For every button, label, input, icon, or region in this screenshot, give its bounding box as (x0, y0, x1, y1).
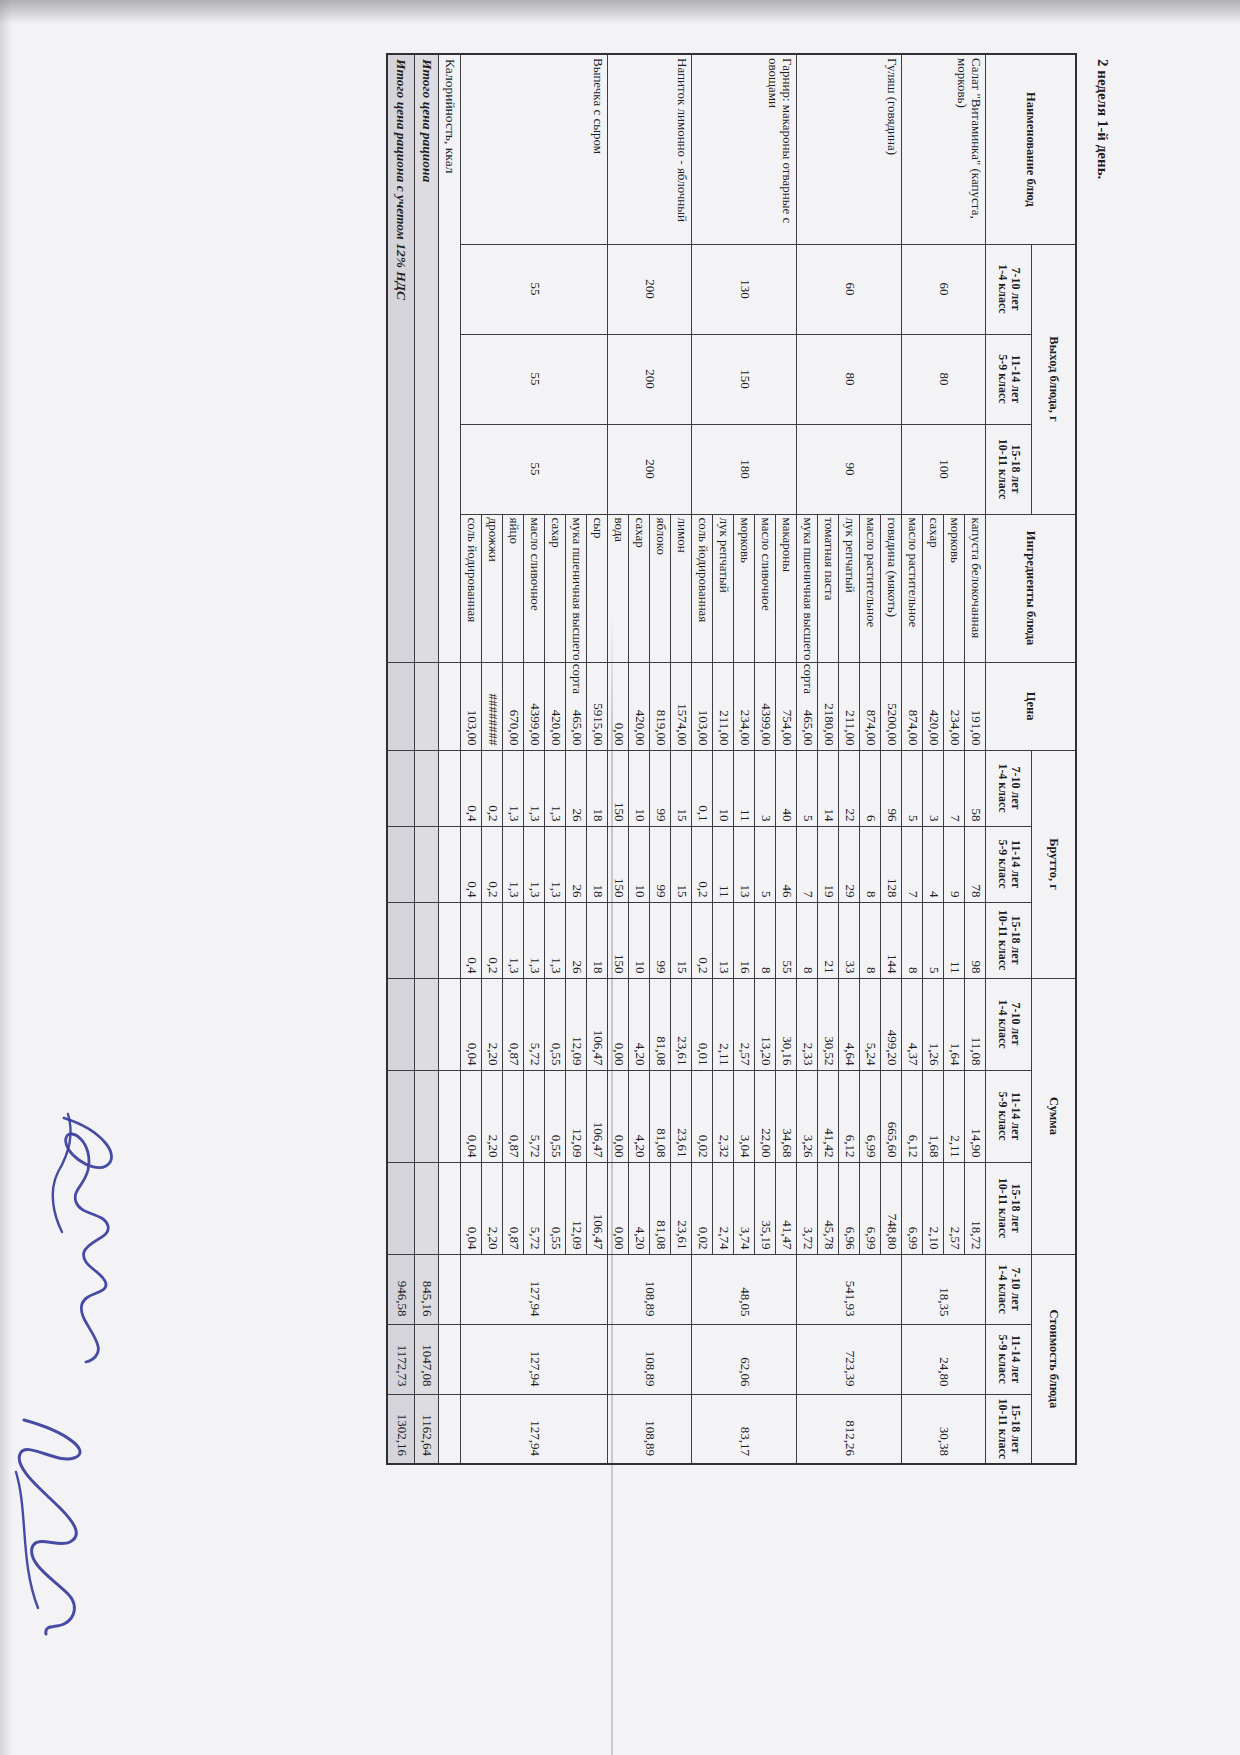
cell-empty (439, 902, 461, 978)
cell-price: 874,00 (902, 662, 923, 750)
col-header-age-class: 7-10 лет 1-4 класс (986, 244, 1032, 334)
handwritten-signature (8, 1412, 98, 1642)
cell-ingredient-name: морковь (944, 514, 965, 662)
cell-price: 670,00 (503, 662, 524, 750)
cell-empty (415, 1070, 439, 1162)
cell-empty (415, 750, 439, 826)
cell-gross-weight: 7 (944, 750, 965, 826)
cell-sum: 0,55 (545, 978, 566, 1070)
cell-output-weight: 80 (797, 334, 902, 424)
cell-gross-weight: 26 (566, 750, 587, 826)
cell-output-weight: 200 (608, 334, 692, 424)
cell-empty (387, 1162, 415, 1254)
cell-sum: 2,11 (713, 978, 734, 1070)
cell-sum: 0,04 (461, 978, 482, 1070)
cell-sum: 5,72 (524, 1162, 545, 1254)
cell-sum: 23,61 (671, 1162, 692, 1254)
cell-sum: 5,72 (524, 1070, 545, 1162)
cell-ingredient-name: томатная паста (818, 514, 839, 662)
cell-dish-cost: 541,93 (797, 1254, 902, 1324)
cell-gross-weight: 29 (839, 826, 860, 902)
cell-gross-weight: 1,3 (524, 826, 545, 902)
cell-gross-weight: 10 (713, 750, 734, 826)
cell-sum: 499,20 (881, 978, 902, 1070)
cell-sum: 2,32 (713, 1070, 734, 1162)
cell-gross-weight: 22 (839, 750, 860, 826)
cell-gross-weight: 11 (734, 750, 755, 826)
cell-output-weight: 180 (692, 424, 797, 514)
cell-output-weight: 100 (902, 424, 986, 514)
cell-sum: 2,74 (713, 1162, 734, 1254)
cell-output-weight: 60 (902, 244, 986, 334)
cell-total-cost: 845,16 (415, 1254, 439, 1324)
cell-sum: 23,61 (671, 978, 692, 1070)
cell-gross-weight: 7 (902, 826, 923, 902)
cell-price: 4399,00 (755, 662, 776, 750)
cell-gross-weight: 18 (587, 750, 608, 826)
cell-gross-weight: 78 (965, 826, 986, 902)
cell-total-cost: 1172,73 (387, 1324, 415, 1394)
cell-output-weight: 55 (461, 244, 608, 334)
cell-dish-cost: 108,89 (608, 1394, 692, 1464)
cell-output-weight: 60 (797, 244, 902, 334)
cell-sum: 35,19 (755, 1162, 776, 1254)
cell-empty (439, 750, 461, 826)
total-row: Итого цена рациона845,161047,081162,64 (415, 54, 439, 1464)
cell-price: 103,00 (692, 662, 713, 750)
cell-gross-weight: 1,3 (545, 902, 566, 978)
cell-sum: 23,61 (671, 1070, 692, 1162)
scan-edge-shadow (0, 0, 1240, 24)
col-header-age-class: 11-14 лет 5-9 класс (986, 1324, 1032, 1394)
cell-sum: 0,00 (608, 1070, 629, 1162)
col-header-age-class: 11-14 лет 5-9 класс (986, 334, 1032, 424)
cell-sum: 6,12 (839, 1070, 860, 1162)
cell-gross-weight: 8 (755, 902, 776, 978)
cell-ingredient-name: соль йодированная (461, 514, 482, 662)
menu-table-body: Салат "Витаминка" (капуста, морковь)6080… (387, 54, 986, 1464)
cell-sum: 41,47 (776, 1162, 797, 1254)
col-header-age-class: 15-18 лет 10-11 класс (986, 1162, 1032, 1254)
cell-gross-weight: 3 (755, 750, 776, 826)
cell-sum: 2,57 (734, 978, 755, 1070)
cell-ingredient-name: мука пшеничная высшего сорта (566, 514, 587, 662)
cell-total-cost (439, 1324, 461, 1394)
cell-gross-weight: 3 (923, 750, 944, 826)
cell-dish-cost: 127,94 (461, 1394, 608, 1464)
col-header-age-class: 15-18 лет 10-11 класс (986, 1394, 1032, 1464)
cell-ingredient-name: макароны (776, 514, 797, 662)
cell-ingredient-name: вода (608, 514, 629, 662)
ingredient-row: Салат "Витаминка" (капуста, морковь)6080… (965, 54, 986, 1464)
cell-ingredient-name: лимон (671, 514, 692, 662)
col-header-age-class: 15-18 лет 10-11 класс (986, 902, 1032, 978)
cell-price: 191,00 (965, 662, 986, 750)
cell-sum: 106,47 (587, 978, 608, 1070)
cell-price: 4399,00 (524, 662, 545, 750)
col-header-age-class: 7-10 лет 1-4 класс (986, 1254, 1032, 1324)
cell-sum: 0,01 (692, 978, 713, 1070)
cell-gross-weight: 16 (734, 902, 755, 978)
cell-output-weight: 150 (692, 334, 797, 424)
cell-price: 420,00 (923, 662, 944, 750)
cell-dish-cost: 723,39 (797, 1324, 902, 1394)
cell-empty (439, 1162, 461, 1254)
cell-dish-cost: 812,26 (797, 1394, 902, 1464)
cell-ingredient-name: дрожжи (482, 514, 503, 662)
cell-gross-weight: 10 (629, 902, 650, 978)
cell-gross-weight: 33 (839, 902, 860, 978)
handwritten-signature (28, 1112, 128, 1367)
cell-gross-weight: 8 (902, 902, 923, 978)
cell-gross-weight: 21 (818, 902, 839, 978)
cell-sum: 30,52 (818, 978, 839, 1070)
cell-gross-weight: 1,3 (545, 750, 566, 826)
cell-ingredient-name: масло сливочное (524, 514, 545, 662)
cell-sum: 4,20 (629, 978, 650, 1070)
cell-gross-weight: 13 (713, 902, 734, 978)
cell-output-weight: 90 (797, 424, 902, 514)
cell-gross-weight: 150 (608, 826, 629, 902)
cell-sum: 3,74 (734, 1162, 755, 1254)
cell-sum: 5,72 (524, 978, 545, 1070)
cell-gross-weight: 150 (608, 750, 629, 826)
cell-output-weight: 55 (461, 334, 608, 424)
cell-sum: 45,78 (818, 1162, 839, 1254)
cell-sum: 748,80 (881, 1162, 902, 1254)
cell-price: 103,00 (461, 662, 482, 750)
cell-gross-weight: 55 (776, 902, 797, 978)
cell-sum: 11,08 (965, 978, 986, 1070)
cell-sum: 4,20 (629, 1162, 650, 1254)
cell-output-weight: 80 (902, 334, 986, 424)
col-header-dish: Наименование блюд (986, 54, 1076, 244)
cell-sum: 18,72 (965, 1162, 986, 1254)
cell-sum: 0,04 (461, 1162, 482, 1254)
cell-gross-weight: 0,2 (482, 826, 503, 902)
cell-price: 5200,00 (881, 662, 902, 750)
cell-price: 234,00 (734, 662, 755, 750)
cell-gross-weight: 19 (818, 826, 839, 902)
cell-gross-weight: 0,1 (692, 750, 713, 826)
cell-empty (387, 826, 415, 902)
cell-dish-name: Напиток лимонно - яблочный (608, 54, 692, 244)
cell-sum: 0,55 (545, 1070, 566, 1162)
cell-gross-weight: 15 (671, 826, 692, 902)
cell-output-weight: 130 (692, 244, 797, 334)
cell-empty (387, 902, 415, 978)
cell-empty (415, 902, 439, 978)
cell-sum: 0,00 (608, 1162, 629, 1254)
cell-gross-weight: 99 (650, 902, 671, 978)
cell-gross-weight: 11 (713, 826, 734, 902)
col-header-output-group: Выход блюда, г (1032, 244, 1076, 514)
cell-empty (387, 1070, 415, 1162)
cell-sum: 3,26 (797, 1070, 818, 1162)
cell-sum: 0,02 (692, 1162, 713, 1254)
col-header-price: Цена (986, 662, 1076, 750)
cell-total-cost: 1302,16 (387, 1394, 415, 1464)
cell-ingredient-name: соль йодированная (692, 514, 713, 662)
cell-sum: 2,11 (944, 1070, 965, 1162)
cell-dish-name: Салат "Витаминка" (капуста, морковь) (902, 54, 986, 244)
cell-sum: 6,99 (860, 1162, 881, 1254)
cell-sum: 4,37 (902, 978, 923, 1070)
cell-gross-weight: 1,3 (545, 826, 566, 902)
cell-gross-weight: 9 (944, 826, 965, 902)
cell-dish-name: Гарнир: макароны отварные с овощами (692, 54, 797, 244)
cell-gross-weight: 8 (860, 826, 881, 902)
cell-dish-cost: 18,35 (902, 1254, 986, 1324)
cell-sum: 12,09 (566, 1162, 587, 1254)
cell-ingredient-name: яйцо (503, 514, 524, 662)
menu-table-head: Наименование блюд Выход блюда, г Ингреди… (986, 54, 1076, 1464)
cell-gross-weight: 0,2 (482, 902, 503, 978)
ingredient-row: Напиток лимонно - яблочный200200200лимон… (671, 54, 692, 1464)
cell-sum: 3,04 (734, 1070, 755, 1162)
col-header-age-class: 7-10 лет 1-4 класс (986, 750, 1032, 826)
cell-gross-weight: 26 (566, 826, 587, 902)
cell-gross-weight: 5 (755, 826, 776, 902)
cell-gross-weight: 6 (860, 750, 881, 826)
cell-sum: 14,90 (965, 1070, 986, 1162)
cell-sum: 2,33 (797, 978, 818, 1070)
cell-sum: 5,24 (860, 978, 881, 1070)
page-title: 2 неделя 1-й день. (1085, 59, 1111, 1463)
cell-total-cost: 1047,08 (415, 1324, 439, 1394)
footer-row-label: Калорийность, ккал (439, 54, 461, 662)
cell-sum: 2,10 (923, 1162, 944, 1254)
cell-dish-name: Выпечка с сыром (461, 54, 608, 244)
cell-gross-weight: 99 (650, 826, 671, 902)
cell-empty (415, 662, 439, 750)
cell-sum: 3,72 (797, 1162, 818, 1254)
cell-sum: 13,20 (755, 978, 776, 1070)
cell-ingredient-name: мука пшеничная высшего сорта (797, 514, 818, 662)
cell-gross-weight: 0,4 (461, 826, 482, 902)
total-row: Итого цена рациона с учетом 12% НДС946,5… (387, 54, 415, 1464)
cell-gross-weight: 0,2 (482, 750, 503, 826)
cell-sum: 0,00 (608, 978, 629, 1070)
col-header-age-class: 11-14 лет 5-9 класс (986, 1070, 1032, 1162)
cell-ingredient-name: морковь (734, 514, 755, 662)
cell-gross-weight: 5 (902, 750, 923, 826)
cell-ingredient-name: сахар (545, 514, 566, 662)
cell-gross-weight: 8 (797, 902, 818, 978)
cell-gross-weight: 10 (629, 826, 650, 902)
cell-price: 420,00 (629, 662, 650, 750)
cell-sum: 12,09 (566, 978, 587, 1070)
cell-price: 420,00 (545, 662, 566, 750)
cell-gross-weight: 99 (650, 750, 671, 826)
cell-sum: 34,68 (776, 1070, 797, 1162)
cell-sum: 2,20 (482, 978, 503, 1070)
cell-sum: 2,20 (482, 1070, 503, 1162)
cell-gross-weight: 96 (881, 750, 902, 826)
cell-gross-weight: 13 (734, 826, 755, 902)
cell-gross-weight: 40 (776, 750, 797, 826)
cell-sum: 30,16 (776, 978, 797, 1070)
cell-dish-cost: 83,17 (692, 1394, 797, 1464)
cell-ingredient-name: масло сливочное (755, 514, 776, 662)
cell-gross-weight: 0,4 (461, 750, 482, 826)
cell-gross-weight: 18 (587, 826, 608, 902)
cell-sum: 81,08 (650, 1162, 671, 1254)
cell-sum: 6,96 (839, 1162, 860, 1254)
cell-ingredient-name: капуста белокочанная (965, 514, 986, 662)
ingredient-row: Выпечка с сыром555555сыр5915,00181818106… (587, 54, 608, 1464)
cell-price: ######## (482, 662, 503, 750)
cell-price: 211,00 (713, 662, 734, 750)
cell-ingredient-name: масло растительное (860, 514, 881, 662)
cell-sum: 106,47 (587, 1070, 608, 1162)
cell-gross-weight: 5 (923, 902, 944, 978)
cell-output-weight: 200 (608, 424, 692, 514)
col-header-cost-group: Стоимость блюда (1032, 1254, 1076, 1464)
cell-empty (439, 826, 461, 902)
cell-gross-weight: 1,3 (503, 826, 524, 902)
cell-gross-weight: 5 (797, 750, 818, 826)
scanned-page: 2 неделя 1-й день. Наименование блюд Вых… (0, 0, 1240, 1755)
cell-empty (387, 750, 415, 826)
cell-sum: 81,08 (650, 978, 671, 1070)
cell-gross-weight: 14 (818, 750, 839, 826)
cell-total-cost (439, 1394, 461, 1464)
cell-gross-weight: 11 (944, 902, 965, 978)
ingredient-row: Гуляш (говядина)608090говядина (мякоть)5… (881, 54, 902, 1464)
cell-gross-weight: 46 (776, 826, 797, 902)
cell-gross-weight: 150 (608, 902, 629, 978)
cell-dish-cost: 24,80 (902, 1324, 986, 1394)
cell-sum: 0,02 (692, 1070, 713, 1162)
cell-gross-weight: 0,2 (692, 826, 713, 902)
header-row-groups: Наименование блюд Выход блюда, г Ингреди… (1032, 54, 1076, 1464)
cell-dish-cost: 127,94 (461, 1324, 608, 1394)
cell-ingredient-name: лук репчатый (713, 514, 734, 662)
col-header-sum-group: Сумма (1032, 978, 1076, 1254)
cell-total-cost: 946,58 (387, 1254, 415, 1324)
cell-sum: 4,64 (839, 978, 860, 1070)
cell-empty (387, 662, 415, 750)
cell-gross-weight: 26 (566, 902, 587, 978)
cell-gross-weight: 1,3 (524, 750, 545, 826)
cell-gross-weight: 15 (671, 902, 692, 978)
footer-row-label: Итого цена рациона (415, 54, 439, 662)
cell-dish-cost: 108,89 (608, 1254, 692, 1324)
cell-sum: 0,04 (461, 1070, 482, 1162)
cell-empty (415, 1162, 439, 1254)
cell-dish-name: Гуляш (говядина) (797, 54, 902, 244)
cell-ingredient-name: масло растительное (902, 514, 923, 662)
cell-sum: 665,60 (881, 1070, 902, 1162)
cell-ingredient-name: сыр (587, 514, 608, 662)
cell-sum: 1,68 (923, 1070, 944, 1162)
cell-output-weight: 55 (461, 424, 608, 514)
cell-sum: 81,08 (650, 1070, 671, 1162)
cell-empty (439, 978, 461, 1070)
cell-sum: 6,99 (902, 1162, 923, 1254)
cell-price: 0,00 (608, 662, 629, 750)
cell-sum: 41,42 (818, 1070, 839, 1162)
cell-sum: 2,57 (944, 1162, 965, 1254)
cell-sum: 0,55 (545, 1162, 566, 1254)
cell-price: 234,00 (944, 662, 965, 750)
col-header-age-class: 11-14 лет 5-9 класс (986, 826, 1032, 902)
cell-price: 819,00 (650, 662, 671, 750)
cell-sum: 0,87 (503, 978, 524, 1070)
cell-gross-weight: 1,3 (524, 902, 545, 978)
cell-gross-weight: 1,3 (503, 750, 524, 826)
cell-empty (415, 826, 439, 902)
cell-price: 5915,00 (587, 662, 608, 750)
col-header-age-class: 15-18 лет 10-11 класс (986, 424, 1032, 514)
col-header-gross-group: Брутто, г (1032, 750, 1076, 978)
cell-sum: 1,26 (923, 978, 944, 1070)
cell-sum: 106,47 (587, 1162, 608, 1254)
cell-gross-weight: 4 (923, 826, 944, 902)
cell-sum: 0,87 (503, 1162, 524, 1254)
cell-dish-cost: 108,89 (608, 1324, 692, 1394)
cell-gross-weight: 15 (671, 750, 692, 826)
cell-gross-weight: 8 (860, 902, 881, 978)
cell-price: 1574,00 (671, 662, 692, 750)
cell-empty (387, 978, 415, 1070)
cell-price: 754,00 (776, 662, 797, 750)
cell-empty (439, 662, 461, 750)
rotated-sheet: 2 неделя 1-й день. Наименование блюд Вых… (385, 53, 1111, 1463)
ingredient-row: Гарнир: макароны отварные с овощами13015… (776, 54, 797, 1464)
cell-gross-weight: 0,2 (692, 902, 713, 978)
cell-price: 211,00 (839, 662, 860, 750)
cell-total-cost: 1162,64 (415, 1394, 439, 1464)
cell-dish-cost: 127,94 (461, 1254, 608, 1324)
cell-sum: 2,20 (482, 1162, 503, 1254)
cell-price: 874,00 (860, 662, 881, 750)
cell-sum: 6,99 (860, 1070, 881, 1162)
cell-empty (439, 1070, 461, 1162)
cell-gross-weight: 0,4 (461, 902, 482, 978)
cell-ingredient-name: яблоко (650, 514, 671, 662)
cell-dish-cost: 48,05 (692, 1254, 797, 1324)
menu-table: Наименование блюд Выход блюда, г Ингреди… (386, 53, 1077, 1465)
cell-empty (415, 978, 439, 1070)
cell-output-weight: 200 (608, 244, 692, 334)
cell-price: 2180,00 (818, 662, 839, 750)
cell-dish-cost: 62,06 (692, 1324, 797, 1394)
cell-gross-weight: 18 (587, 902, 608, 978)
cell-total-cost (439, 1254, 461, 1324)
cell-gross-weight: 98 (965, 902, 986, 978)
cell-gross-weight: 128 (881, 826, 902, 902)
cell-gross-weight: 58 (965, 750, 986, 826)
cell-sum: 22,00 (755, 1070, 776, 1162)
cell-gross-weight: 7 (797, 826, 818, 902)
cell-sum: 1,64 (944, 978, 965, 1070)
cell-sum: 4,20 (629, 1070, 650, 1162)
col-header-ingredients: Ингредиенты блюда (986, 514, 1076, 662)
cell-ingredient-name: сахар (629, 514, 650, 662)
cell-gross-weight: 10 (629, 750, 650, 826)
cell-ingredient-name: лук репчатый (839, 514, 860, 662)
cell-sum: 12,09 (566, 1070, 587, 1162)
cell-ingredient-name: сахар (923, 514, 944, 662)
header-row-classes: 7-10 лет 1-4 класс 11-14 лет 5-9 класс 1… (986, 54, 1032, 1464)
cell-sum: 0,87 (503, 1070, 524, 1162)
footer-row-label: Итого цена рациона с учетом 12% НДС (387, 54, 415, 662)
cell-sum: 6,12 (902, 1070, 923, 1162)
cell-ingredient-name: говядина (мякоть) (881, 514, 902, 662)
col-header-age-class: 7-10 лет 1-4 класс (986, 978, 1032, 1070)
